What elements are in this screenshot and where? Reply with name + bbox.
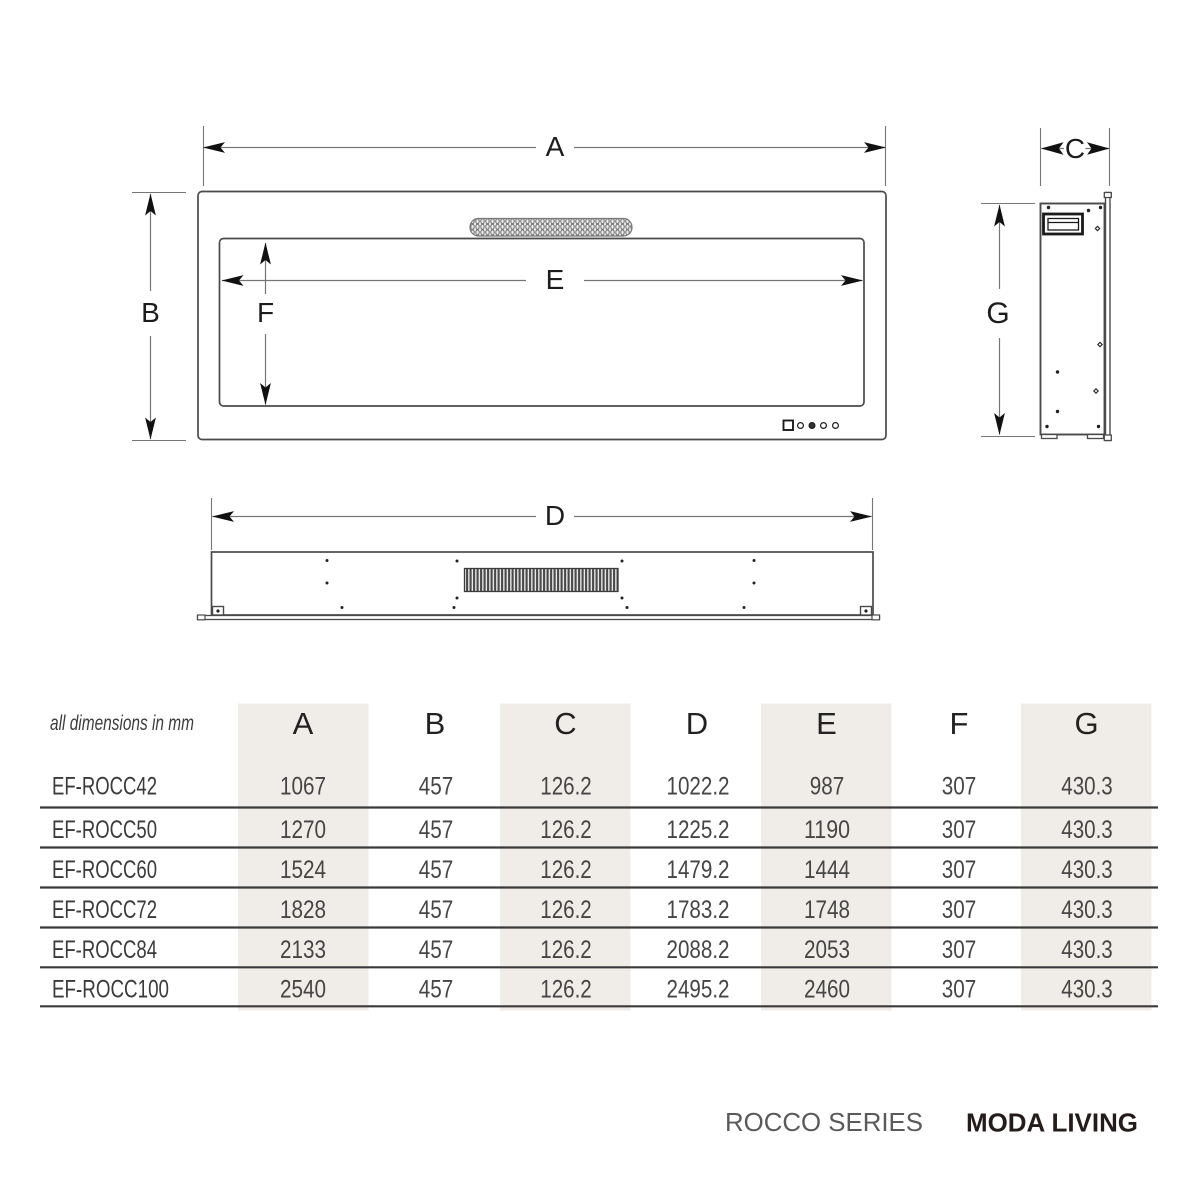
svg-text:430.3: 430.3: [1061, 816, 1113, 844]
svg-text:ROCCO SERIES: ROCCO SERIES: [725, 1107, 923, 1137]
svg-text:307: 307: [942, 976, 977, 1004]
svg-text:EF-ROCC84: EF-ROCC84: [52, 936, 157, 964]
svg-text:126.2: 126.2: [540, 773, 592, 801]
svg-text:457: 457: [419, 936, 454, 964]
svg-text:126.2: 126.2: [540, 856, 592, 884]
svg-text:B: B: [425, 706, 446, 741]
svg-text:EF-ROCC50: EF-ROCC50: [52, 816, 157, 844]
svg-text:457: 457: [419, 816, 454, 844]
svg-text:126.2: 126.2: [540, 896, 592, 924]
svg-text:307: 307: [942, 773, 977, 801]
svg-text:987: 987: [810, 773, 845, 801]
svg-text:E: E: [546, 264, 565, 295]
svg-text:E: E: [816, 706, 837, 741]
svg-text:307: 307: [942, 896, 977, 924]
svg-text:430.3: 430.3: [1061, 773, 1113, 801]
svg-text:2540: 2540: [280, 976, 326, 1004]
svg-text:A: A: [293, 706, 314, 741]
svg-text:C: C: [554, 706, 576, 741]
svg-text:all dimensions in mm: all dimensions in mm: [50, 712, 194, 735]
svg-text:430.3: 430.3: [1061, 856, 1113, 884]
svg-text:EF-ROCC42: EF-ROCC42: [52, 773, 157, 801]
svg-text:430.3: 430.3: [1061, 896, 1113, 924]
svg-text:MODA LIVING: MODA LIVING: [966, 1108, 1138, 1138]
svg-text:EF-ROCC100: EF-ROCC100: [52, 976, 169, 1004]
svg-text:B: B: [141, 297, 160, 328]
svg-text:1067: 1067: [280, 773, 326, 801]
svg-text:1225.2: 1225.2: [667, 816, 730, 844]
svg-text:1748: 1748: [804, 896, 850, 924]
svg-text:1190: 1190: [804, 816, 850, 844]
svg-text:2088.2: 2088.2: [667, 936, 730, 964]
svg-text:1524: 1524: [280, 856, 326, 884]
svg-text:F: F: [950, 706, 969, 741]
svg-text:2460: 2460: [804, 976, 850, 1004]
svg-text:126.2: 126.2: [540, 936, 592, 964]
svg-text:1783.2: 1783.2: [667, 896, 730, 924]
svg-text:D: D: [545, 500, 565, 531]
svg-text:1270: 1270: [280, 816, 326, 844]
svg-text:A: A: [546, 131, 565, 162]
svg-text:307: 307: [942, 816, 977, 844]
svg-text:1444: 1444: [804, 856, 850, 884]
svg-text:430.3: 430.3: [1061, 936, 1113, 964]
svg-text:307: 307: [942, 936, 977, 964]
svg-text:430.3: 430.3: [1061, 976, 1113, 1004]
svg-text:457: 457: [419, 773, 454, 801]
svg-text:126.2: 126.2: [540, 976, 592, 1004]
svg-text:G: G: [986, 297, 1009, 330]
svg-text:126.2: 126.2: [540, 816, 592, 844]
svg-text:2133: 2133: [280, 936, 326, 964]
svg-text:457: 457: [419, 976, 454, 1004]
svg-text:457: 457: [419, 856, 454, 884]
svg-text:2495.2: 2495.2: [667, 976, 730, 1004]
svg-text:D: D: [686, 706, 708, 741]
svg-text:EF-ROCC72: EF-ROCC72: [52, 896, 157, 924]
svg-text:1022.2: 1022.2: [667, 773, 730, 801]
svg-text:1479.2: 1479.2: [667, 856, 730, 884]
svg-text:C: C: [1065, 133, 1085, 164]
svg-text:F: F: [257, 297, 274, 328]
svg-text:457: 457: [419, 896, 454, 924]
svg-text:2053: 2053: [804, 936, 850, 964]
svg-text:1828: 1828: [280, 896, 326, 924]
svg-text:G: G: [1074, 706, 1098, 741]
svg-text:EF-ROCC60: EF-ROCC60: [52, 856, 157, 884]
svg-text:307: 307: [942, 856, 977, 884]
